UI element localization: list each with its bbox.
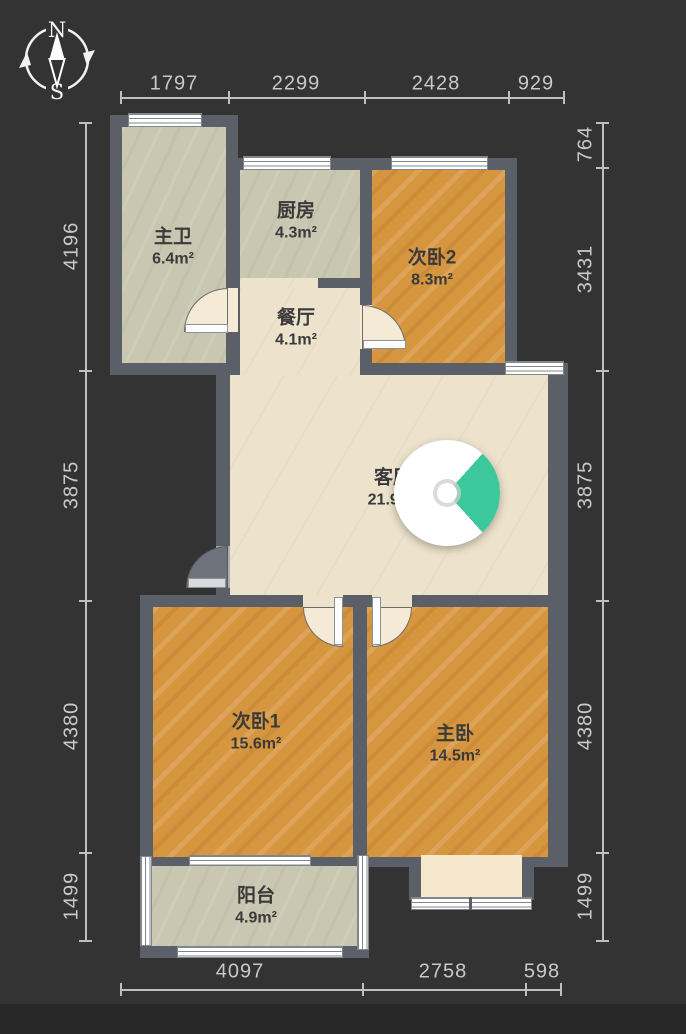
dim-tick [508,91,510,104]
label-master-bath: 主卫 6.4m² [152,227,194,270]
dim-bottom-3: 598 [524,961,560,984]
window-balcony-left [140,856,152,946]
dim-right-4: 4380 [575,702,598,751]
label-bedroom1: 次卧1 15.6m² [231,712,282,755]
compass-south-label: S [50,80,64,104]
room-name: 次卧2 [408,248,457,271]
dim-left-4: 1499 [61,872,84,921]
dim-top-4: 929 [518,73,554,96]
room-area: 4.1m² [275,330,317,350]
door-leaf-master-bedroom [372,597,381,645]
dim-tick [120,91,122,104]
window-bay-mullion [469,897,472,910]
dim-bottom-1: 4097 [216,961,265,984]
room-area: 6.4m² [152,249,194,269]
dim-top-1: 1797 [150,73,199,96]
window-balcony-bottom [177,946,343,958]
label-master-bedroom: 主卧 14.5m² [430,724,481,767]
window-master-bath [128,113,202,127]
dim-tick [596,122,609,124]
dim-right-3: 3875 [575,461,598,510]
wall-bay-right [522,855,534,900]
dim-tick [596,940,609,942]
dim-line-top [120,97,563,99]
room-name: 主卫 [152,227,194,250]
wall-living-right [548,363,568,607]
dim-tick [79,600,92,602]
wall-balcony-corner-left [140,946,177,958]
label-kitchen: 厨房 4.3m² [275,201,317,244]
label-dining: 餐厅 4.1m² [275,308,317,351]
dim-tick [228,91,230,104]
dim-top-3: 2428 [412,73,461,96]
window-bed1-balcony-slider [189,855,311,866]
door-leaf-bedroom2 [363,340,406,349]
room-name: 主卧 [430,724,481,747]
door-leaf-master-bath [185,324,228,333]
viewpoint-center-dot [437,483,457,503]
dim-right-1: 764 [575,126,598,162]
room-area: 15.6m² [231,734,282,754]
dim-tick [596,167,609,169]
dim-top-2: 2299 [272,73,321,96]
floorplan-canvas: 1797 2299 2428 929 4196 3875 4380 1499 7… [0,0,686,1034]
dim-tick [120,983,122,996]
dim-left-2: 3875 [61,461,84,510]
dim-tick [596,852,609,854]
label-bedroom2: 次卧2 8.3m² [408,248,457,291]
dim-line-right [602,122,604,940]
wall-bedrooms-right [548,595,568,867]
dim-tick [596,600,609,602]
dim-tick [596,370,609,372]
dim-tick [79,852,92,854]
room-area: 4.9m² [235,908,277,928]
window-bedroom2 [391,156,488,170]
dim-tick [525,983,527,996]
dim-tick [79,370,92,372]
room-area: 14.5m² [430,746,481,766]
dim-bottom-2: 2758 [419,961,468,984]
wall-bay-left [409,855,421,900]
dim-tick [364,91,366,104]
dim-tick [79,122,92,124]
dim-left-1: 4196 [61,222,84,271]
dim-tick [362,983,364,996]
label-balcony: 阳台 4.9m² [235,886,277,929]
room-name: 次卧1 [231,712,282,735]
room-area: 4.3m² [275,223,317,243]
floor-bay-window [421,855,522,899]
wall-bedrooms-divider [353,595,367,857]
bottom-shade-band [0,1004,686,1034]
panorama-viewpoint-widget[interactable] [394,440,500,546]
opening-kitchen-dining [240,278,318,288]
window-balcony-right [357,855,369,950]
room-area: 8.3m² [408,270,457,290]
room-name: 阳台 [235,886,277,909]
dim-tick [563,91,565,104]
window-kitchen [243,156,331,170]
dim-right-2: 3431 [575,245,598,294]
compass-arrow-left [19,52,31,68]
wall-living-left [216,375,230,546]
compass-north-label: N [48,18,66,42]
door-leaf-bedroom1 [334,597,343,645]
compass-arrow-right [83,50,95,66]
compass-icon: N S [12,10,102,108]
dim-line-left [85,122,87,940]
wall-bedrooms-left [140,595,153,868]
room-name: 餐厅 [275,308,317,331]
dim-right-5: 1499 [575,872,598,921]
door-leaf-entry [188,578,226,588]
room-name: 厨房 [275,201,317,224]
dim-tick [79,940,92,942]
dim-line-bottom [120,989,560,991]
dim-tick [560,983,562,996]
dim-left-3: 4380 [61,702,84,751]
window-living [505,361,564,375]
